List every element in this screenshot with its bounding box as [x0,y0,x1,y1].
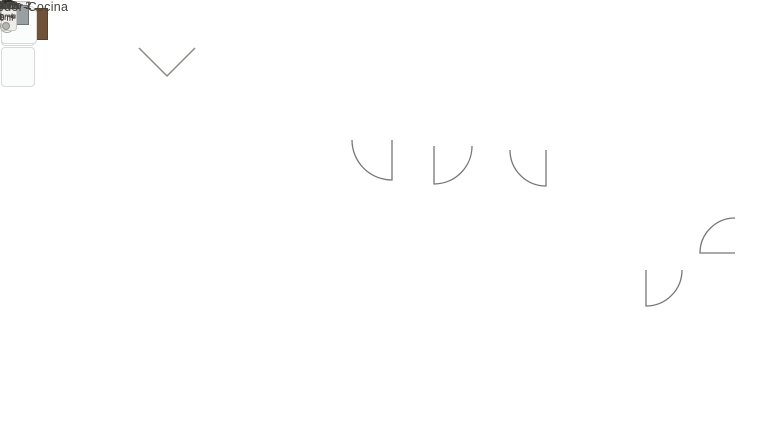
sofa-cushion [1,47,35,87]
floor-plan: LV AE Terraza 17,79 m² Dormitorio 1 12,0… [0,0,780,432]
room-area: 3,70 m² [0,13,18,22]
room-label-bano2: Baño 2 3,70 m² [0,0,18,22]
entrance-door-swing [700,218,735,253]
dormitorio2-door-swing [510,150,546,186]
bathroom2-door-swing [646,270,682,306]
bathroom1-door-swing [434,146,472,184]
door-swing-overlay [0,0,780,432]
closet-door-fold-lines [139,48,195,76]
dormitorio1-door-swing [352,140,392,180]
room-name: Baño 2 [0,0,18,13]
